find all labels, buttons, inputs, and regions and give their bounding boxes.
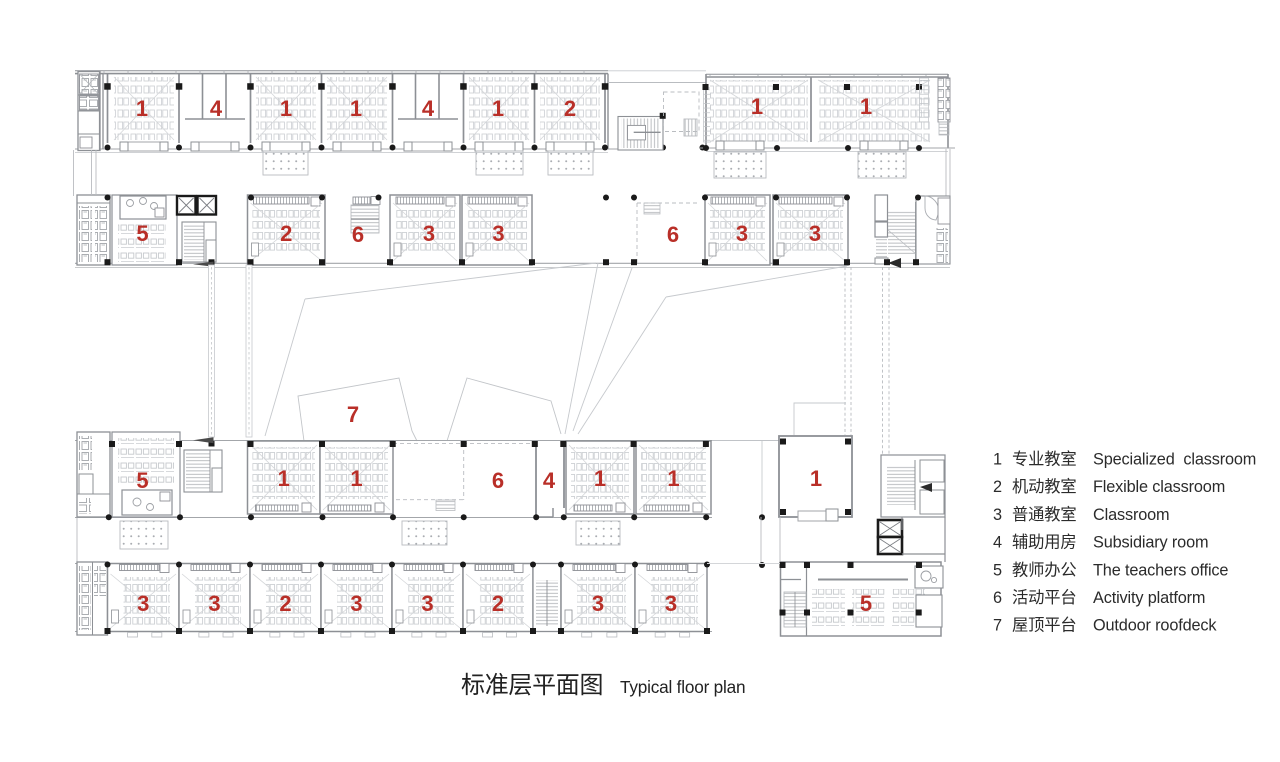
svg-text:1: 1: [993, 451, 1002, 469]
svg-text:3: 3: [592, 591, 604, 616]
svg-text:Outdoor roofdeck: Outdoor roofdeck: [1093, 617, 1217, 635]
svg-text:5: 5: [860, 591, 872, 616]
svg-text:1: 1: [136, 96, 148, 121]
svg-text:6: 6: [993, 589, 1002, 607]
svg-text:3: 3: [423, 221, 435, 246]
svg-text:Subsidiary room: Subsidiary room: [1093, 534, 1208, 552]
svg-text:3: 3: [208, 591, 220, 616]
svg-text:Specialized classroom: Specialized classroom: [1093, 451, 1256, 469]
svg-text:1: 1: [751, 94, 763, 119]
svg-text:专业教室: 专业教室: [1012, 451, 1077, 469]
svg-text:1: 1: [278, 466, 290, 491]
svg-text:1: 1: [280, 96, 292, 121]
svg-text:教师办公: 教师办公: [1012, 561, 1077, 579]
svg-text:标准层平面图: 标准层平面图: [461, 672, 603, 699]
svg-text:1: 1: [810, 466, 822, 491]
svg-text:Typical floor plan: Typical floor plan: [620, 677, 745, 697]
svg-text:3: 3: [736, 221, 748, 246]
svg-text:1: 1: [350, 466, 362, 491]
svg-text:Classroom: Classroom: [1093, 506, 1169, 524]
svg-text:2: 2: [279, 591, 291, 616]
svg-text:7: 7: [347, 402, 359, 427]
svg-text:2: 2: [280, 221, 292, 246]
svg-text:辅助用房: 辅助用房: [1012, 534, 1077, 552]
svg-text:7: 7: [993, 617, 1002, 635]
svg-text:活动平台: 活动平台: [1012, 589, 1077, 607]
svg-text:5: 5: [136, 468, 148, 493]
svg-text:4: 4: [422, 96, 435, 121]
svg-text:6: 6: [492, 468, 504, 493]
svg-text:Activity platform: Activity platform: [1093, 589, 1205, 607]
svg-text:3: 3: [350, 591, 362, 616]
svg-text:5: 5: [993, 561, 1002, 579]
svg-text:普通教室: 普通教室: [1012, 506, 1077, 524]
svg-text:1: 1: [860, 94, 872, 119]
svg-text:1: 1: [492, 96, 504, 121]
svg-text:2: 2: [564, 96, 576, 121]
svg-text:屋顶平台: 屋顶平台: [1012, 617, 1077, 635]
svg-text:3: 3: [809, 221, 821, 246]
svg-text:Flexible classroom: Flexible classroom: [1093, 478, 1225, 496]
svg-text:6: 6: [352, 222, 364, 247]
svg-text:3: 3: [665, 591, 677, 616]
svg-text:1: 1: [594, 466, 606, 491]
svg-text:4: 4: [210, 96, 223, 121]
svg-text:2: 2: [492, 591, 504, 616]
svg-text:The teachers office: The teachers office: [1093, 561, 1228, 579]
svg-text:6: 6: [667, 222, 679, 247]
svg-text:3: 3: [137, 591, 149, 616]
svg-text:机动教室: 机动教室: [1012, 478, 1077, 496]
svg-text:3: 3: [993, 506, 1002, 524]
svg-text:4: 4: [543, 468, 556, 493]
svg-text:3: 3: [492, 221, 504, 246]
svg-text:1: 1: [667, 466, 679, 491]
svg-text:1: 1: [350, 96, 362, 121]
svg-text:4: 4: [993, 534, 1002, 552]
svg-text:2: 2: [993, 478, 1002, 496]
svg-text:5: 5: [136, 221, 148, 246]
svg-text:3: 3: [421, 591, 433, 616]
